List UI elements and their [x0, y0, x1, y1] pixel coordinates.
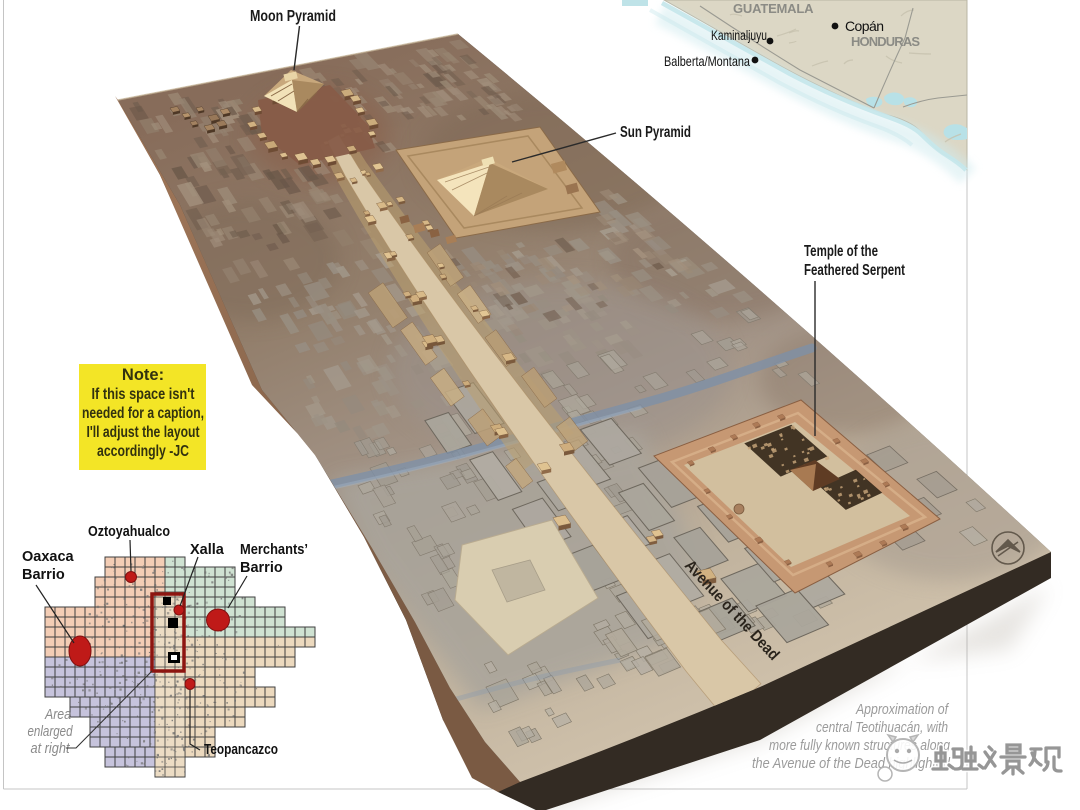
svg-text:enlarged: enlarged	[28, 723, 73, 740]
svg-text:Sun Pyramid: Sun Pyramid	[620, 124, 691, 141]
svg-text:Note:: Note:	[122, 366, 164, 384]
svg-text:at right: at right	[31, 740, 71, 757]
svg-text:Oaxaca: Oaxaca	[22, 549, 75, 565]
svg-text:Area: Area	[44, 706, 71, 723]
svg-text:Barrio: Barrio	[22, 567, 65, 583]
svg-text:Oztoyahualco: Oztoyahualco	[88, 524, 170, 540]
svg-text:Moon Pyramid: Moon Pyramid	[250, 8, 336, 25]
svg-text:more fully known structures al: more fully known structures along	[769, 738, 950, 754]
svg-text:If this space isn't: If this space isn't	[92, 386, 196, 403]
svg-text:central Teotihuacán, with: central Teotihuacán, with	[816, 720, 948, 736]
svg-text:Kaminaljuyu: Kaminaljuyu	[711, 27, 767, 43]
svg-text:GUATEMALA: GUATEMALA	[733, 1, 815, 16]
svg-text:Copán: Copán	[845, 18, 884, 34]
svg-text:Balberta/Montana: Balberta/Montana	[664, 53, 750, 69]
svg-text:I'll adjust the layout: I'll adjust the layout	[87, 424, 201, 441]
svg-text:Xalla: Xalla	[190, 542, 225, 558]
svg-text:Merchants’: Merchants’	[240, 542, 308, 558]
svg-text:Teopancazco: Teopancazco	[204, 742, 278, 758]
svg-text:accordingly -JC: accordingly -JC	[97, 443, 189, 460]
svg-text:Approximation of: Approximation of	[855, 702, 950, 718]
svg-text:needed for a caption,: needed for a caption,	[82, 405, 204, 422]
svg-text:the Avenue of the Dead highlig: the Avenue of the Dead highlighted	[752, 756, 951, 772]
svg-text:Feathered Serpent: Feathered Serpent	[804, 262, 905, 279]
svg-text:HONDURAS: HONDURAS	[851, 34, 921, 49]
svg-text:Temple of the: Temple of the	[804, 243, 878, 260]
svg-text:Barrio: Barrio	[240, 560, 283, 576]
